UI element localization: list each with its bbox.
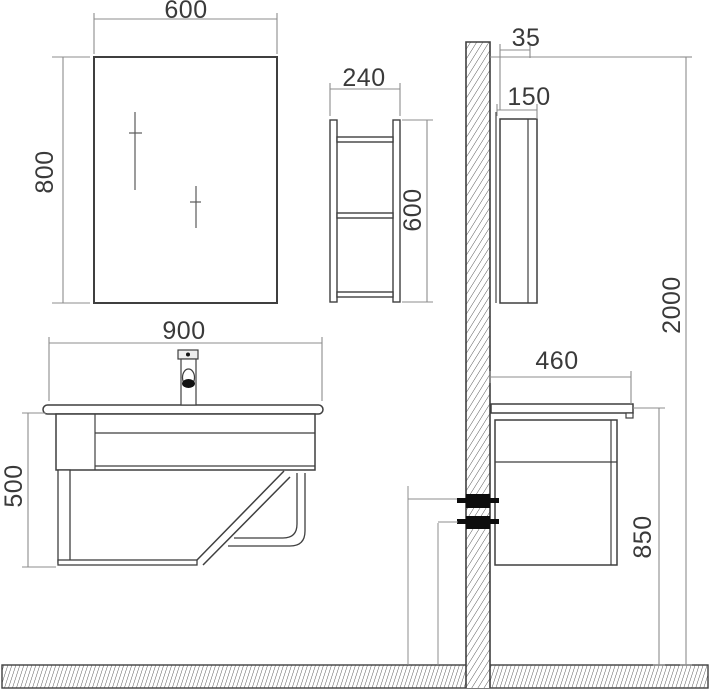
dim-vanity-depth (490, 371, 631, 404)
frame-bottom-rail (58, 560, 197, 565)
dim-label-wall-gap: 35 (486, 25, 566, 51)
vanity-side-view (491, 404, 633, 565)
countertop-front (43, 405, 323, 414)
dim-label-counter-height: 850 (630, 497, 656, 577)
drawing-linework (0, 0, 710, 693)
shelf-middle-board (337, 213, 393, 218)
technical-drawing-canvas: 600 800 240 600 150 35 2000 900 500 460 … (0, 0, 710, 693)
shelf-bottom-board (337, 292, 393, 297)
dim-label-wall-height: 2000 (659, 265, 685, 345)
vanity-front-view (43, 350, 323, 565)
faucet (178, 350, 198, 405)
dim-label-vanity-depth: 460 (517, 348, 597, 374)
floor-section (2, 665, 708, 688)
dim-label-mirror-height: 800 (32, 132, 58, 212)
towel-bar-inner (234, 473, 297, 538)
dim-label-shelf-height: 600 (400, 170, 426, 250)
towel-rack-frame (58, 470, 305, 565)
mirror-outline (94, 57, 277, 303)
countertop-side (491, 404, 633, 413)
dim-label-vanity-width: 900 (144, 318, 224, 344)
dim-label-shelf-depth: 150 (489, 84, 569, 110)
mount-pin-lower (457, 519, 499, 524)
shelf-top-board (337, 137, 393, 142)
shelf-side-view (496, 112, 537, 303)
shelf-front-view (330, 120, 400, 302)
frame-diagonal-inner (203, 477, 290, 565)
shelf-left-panel (330, 120, 337, 302)
dim-label-mirror-width: 600 (146, 0, 226, 23)
plumbing-reference-lines (408, 486, 458, 665)
faucet-spout (182, 379, 195, 388)
mount-pin-upper (457, 498, 499, 503)
shelf-side-outline (500, 119, 537, 303)
wall-hatching (466, 42, 490, 688)
wall-section (466, 42, 490, 688)
dim-label-shelf-width: 240 (324, 65, 404, 91)
mirror-front-view (94, 57, 277, 303)
faucet-cap-dot (186, 353, 190, 357)
vanity-cabinet-side (495, 420, 617, 565)
countertop-nose (626, 413, 633, 418)
floor-hatching (2, 665, 708, 688)
dim-label-vanity-height: 500 (1, 446, 27, 526)
frame-left-leg (58, 470, 70, 563)
